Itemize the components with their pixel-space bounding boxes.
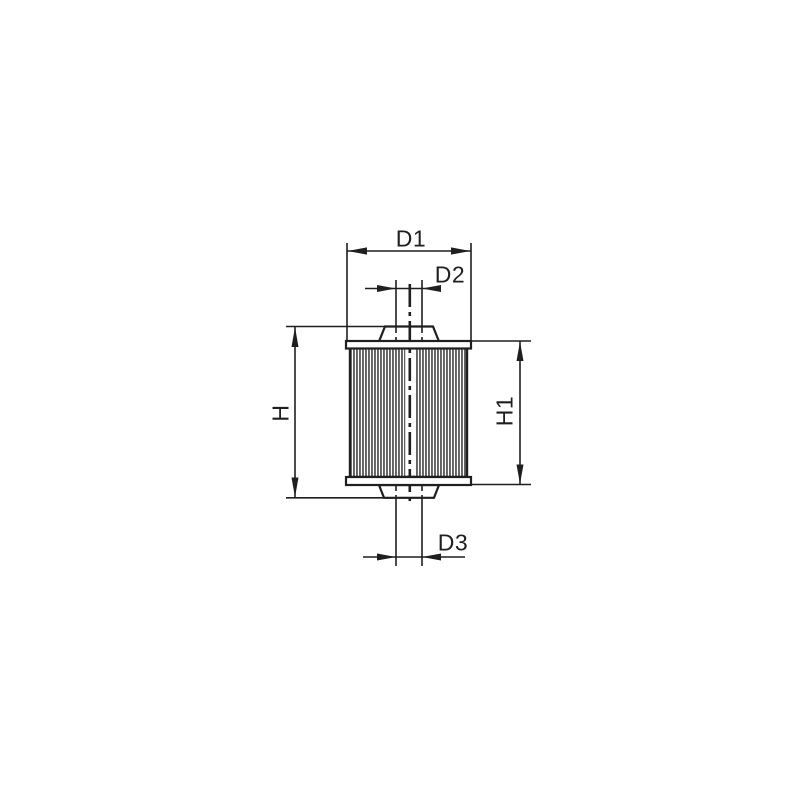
dimension-d2 — [365, 280, 441, 327]
h1-arrow-bottom — [517, 465, 524, 485]
d3-arrow-left — [377, 554, 396, 561]
bottom-end-cap — [346, 477, 471, 485]
d2-arrow-left — [377, 285, 396, 292]
dimension-label-h: H — [270, 404, 293, 421]
dimension-label-d1: D1 — [396, 228, 426, 251]
top-end-cap — [346, 341, 471, 349]
h-arrow-bottom — [292, 478, 299, 498]
dimension-label-d2: D2 — [435, 264, 465, 287]
h1-arrow-top — [517, 342, 524, 362]
d1-arrow-right — [451, 247, 471, 254]
d1-arrow-left — [348, 247, 368, 254]
dimension-label-h1: H1 — [494, 396, 517, 426]
dimension-label-d3: D3 — [438, 532, 468, 555]
drawing-canvas — [0, 0, 800, 800]
filter-element-technical-drawing: D1 D2 D3 H H1 — [0, 0, 800, 800]
h-arrow-top — [292, 327, 299, 347]
